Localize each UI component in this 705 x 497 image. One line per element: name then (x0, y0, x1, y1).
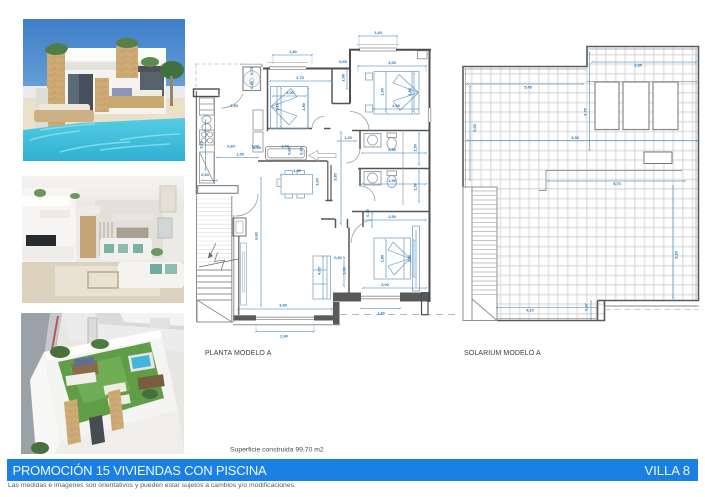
svg-text:9,30: 9,30 (571, 135, 579, 140)
svg-text:1,50: 1,50 (413, 144, 418, 152)
svg-text:1,80: 1,80 (289, 49, 297, 54)
svg-text:0,60: 0,60 (287, 147, 292, 155)
svg-text:2,50: 2,50 (230, 103, 238, 108)
svg-text:VILLA 8: VILLA 8 (644, 463, 690, 478)
svg-text:PLANTA MODELO A: PLANTA MODELO A (205, 350, 272, 357)
svg-text:1,90: 1,90 (342, 267, 347, 275)
svg-text:PROMOCIÓN 15 VIVIENDAS CON PIS: PROMOCIÓN 15 VIVIENDAS CON PISCINA (13, 463, 268, 478)
svg-text:6,60: 6,60 (254, 232, 259, 240)
svg-text:2,50: 2,50 (388, 214, 396, 219)
svg-text:3,10: 3,10 (275, 103, 280, 111)
svg-text:1,80: 1,80 (380, 255, 385, 263)
svg-text:0,45: 0,45 (299, 146, 304, 154)
svg-text:0,60: 0,60 (334, 255, 342, 260)
svg-text:4,10: 4,10 (526, 308, 534, 313)
svg-text:3,00: 3,00 (388, 60, 396, 65)
svg-text:1,20: 1,20 (344, 135, 352, 140)
svg-text:1,60: 1,60 (377, 311, 385, 316)
svg-text:5,45: 5,45 (524, 85, 532, 90)
svg-text:0,97: 0,97 (584, 303, 589, 311)
svg-text:2,00: 2,00 (407, 255, 412, 263)
svg-text:2,50: 2,50 (388, 147, 396, 152)
svg-text:0,75: 0,75 (249, 66, 254, 74)
svg-text:5,70: 5,70 (613, 181, 621, 186)
svg-text:Las medidas e imagenes son ori: Las medidas e imagenes son orientativos … (8, 482, 296, 489)
svg-text:0,60: 0,60 (201, 172, 209, 177)
svg-text:SOLARIUM MODELO A: SOLARIUM MODELO A (464, 350, 541, 357)
svg-text:0,75: 0,75 (365, 208, 370, 216)
svg-text:0,60: 0,60 (227, 144, 235, 149)
svg-text:2,40: 2,40 (280, 334, 288, 339)
svg-text:5,00: 5,00 (472, 124, 477, 132)
svg-text:0,90: 0,90 (249, 81, 254, 89)
svg-text:3,00: 3,00 (381, 282, 389, 287)
svg-text:4,05: 4,05 (317, 266, 322, 274)
svg-text:1,80: 1,80 (407, 88, 412, 96)
svg-text:2,00: 2,00 (286, 90, 294, 95)
svg-text:2,70: 2,70 (296, 75, 304, 80)
svg-text:1,60: 1,60 (315, 178, 320, 186)
svg-text:Superficie construida 99,70 m2: Superficie construida 99,70 m2 (230, 447, 324, 454)
svg-text:2,50: 2,50 (388, 178, 396, 183)
svg-text:1,50: 1,50 (413, 183, 418, 191)
svg-text:1,00: 1,00 (251, 144, 259, 149)
svg-text:4,75: 4,75 (583, 107, 588, 115)
svg-text:3,90: 3,90 (279, 303, 287, 308)
svg-text:1,08: 1,08 (341, 73, 346, 81)
svg-text:2,00: 2,00 (392, 103, 400, 108)
svg-text:3,65: 3,65 (199, 140, 204, 148)
svg-text:1,85: 1,85 (293, 168, 301, 173)
svg-text:3,85: 3,85 (634, 63, 642, 68)
svg-text:5,24: 5,24 (674, 250, 679, 258)
svg-text:1,90: 1,90 (380, 88, 385, 96)
svg-text:0,65: 0,65 (339, 59, 347, 64)
svg-text:1,35: 1,35 (236, 152, 244, 157)
svg-text:1,60: 1,60 (374, 30, 382, 35)
svg-text:1,80: 1,80 (301, 103, 306, 111)
svg-text:3,85: 3,85 (333, 172, 338, 180)
